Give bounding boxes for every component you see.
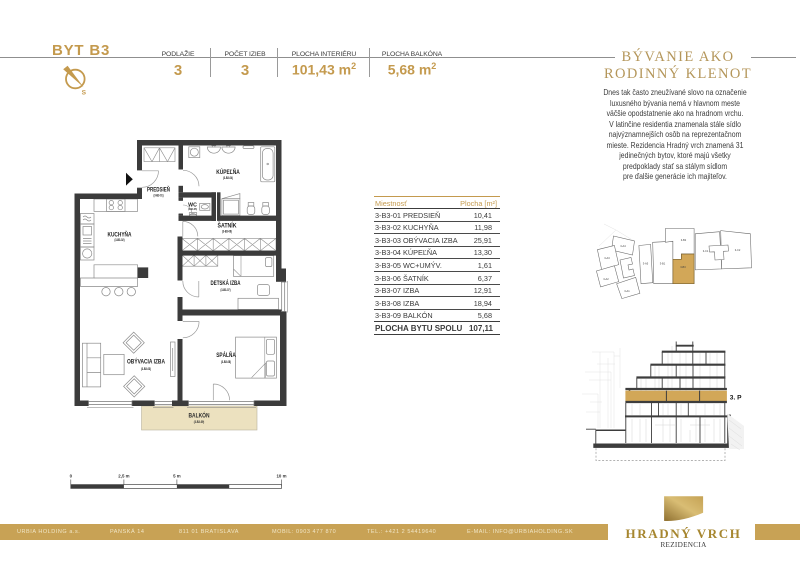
svg-text:3-A4: 3-A4 xyxy=(620,244,626,248)
svg-text:(3-B3-07): (3-B3-07) xyxy=(221,288,231,292)
svg-text:(3-B3-09): (3-B3-09) xyxy=(194,420,205,424)
svg-text:2,5 m: 2,5 m xyxy=(118,474,129,479)
svg-text:(3-B3-05): (3-B3-05) xyxy=(188,207,197,211)
svg-text:PREDSIEŇ: PREDSIEŇ xyxy=(147,186,170,194)
svg-text:(3-B3-04): (3-B3-04) xyxy=(223,176,233,180)
svg-text:3-A5: 3-A5 xyxy=(643,262,649,266)
svg-text:(3-B3-06): (3-B3-06) xyxy=(222,230,232,234)
svg-text:ŠATNÍK: ŠATNÍK xyxy=(218,221,237,230)
svg-text:0: 0 xyxy=(70,474,73,479)
svg-text:3-B1: 3-B1 xyxy=(660,262,666,266)
svg-text:3-A3: 3-A3 xyxy=(604,256,610,260)
svg-text:3-C2: 3-C2 xyxy=(735,248,741,252)
svg-text:3. P: 3. P xyxy=(730,395,742,402)
svg-text:10 m: 10 m xyxy=(276,474,286,479)
svg-text:DETSKÁ IZBA: DETSKÁ IZBA xyxy=(211,278,241,287)
svg-text:5 m: 5 m xyxy=(173,474,181,479)
svg-text:OBÝVACIA IZBA: OBÝVACIA IZBA xyxy=(127,357,165,366)
svg-text:BALKÓN: BALKÓN xyxy=(189,410,210,419)
svg-text:3-C1: 3-C1 xyxy=(703,249,709,253)
svg-text:SPÁLŇA: SPÁLŇA xyxy=(216,350,236,359)
svg-text:KÚPEĽŇA: KÚPEĽŇA xyxy=(216,167,240,176)
svg-text:(3-B3-01): (3-B3-01) xyxy=(154,194,164,198)
svg-text:(3-B3-08): (3-B3-08) xyxy=(221,360,231,364)
svg-text:3-A2: 3-A2 xyxy=(603,277,609,281)
svg-text:(3-B3-02): (3-B3-02) xyxy=(115,238,125,242)
svg-text:(3-B3-03): (3-B3-03) xyxy=(141,367,151,371)
svg-text:3-B2: 3-B2 xyxy=(681,238,687,242)
svg-text:3-B3: 3-B3 xyxy=(680,265,686,269)
svg-text:3-A1: 3-A1 xyxy=(624,289,630,293)
